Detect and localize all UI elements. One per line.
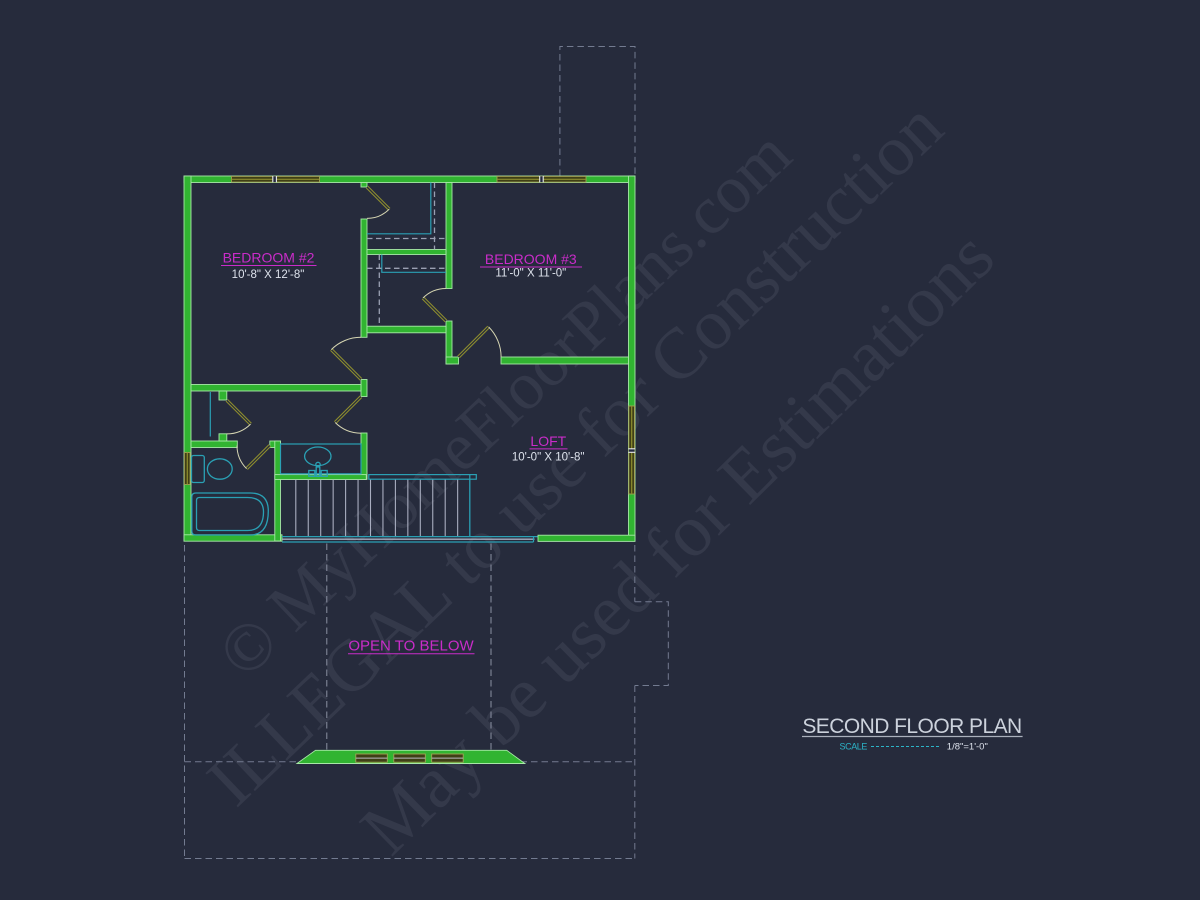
svg-text:SECOND FLOOR PLAN: SECOND FLOOR PLAN bbox=[802, 715, 1021, 738]
svg-text:10'-0" X 10'-8": 10'-0" X 10'-8" bbox=[512, 452, 585, 464]
svg-text:BEDROOM #3: BEDROOM #3 bbox=[485, 251, 577, 267]
svg-text:10'-8" X 12'-8": 10'-8" X 12'-8" bbox=[232, 269, 305, 281]
svg-text:LOFT: LOFT bbox=[530, 433, 566, 449]
svg-text:SCALE: SCALE bbox=[840, 742, 868, 752]
svg-text:1/8"=1'-0": 1/8"=1'-0" bbox=[947, 742, 988, 753]
svg-text:© MyHomeFloorPlans.com: © MyHomeFloorPlans.com bbox=[203, 115, 805, 692]
svg-text:OPEN TO BELOW: OPEN TO BELOW bbox=[348, 638, 474, 655]
svg-text:BEDROOM #2: BEDROOM #2 bbox=[223, 250, 315, 266]
svg-text:11'-0" X 11'-0": 11'-0" X 11'-0" bbox=[495, 268, 566, 280]
